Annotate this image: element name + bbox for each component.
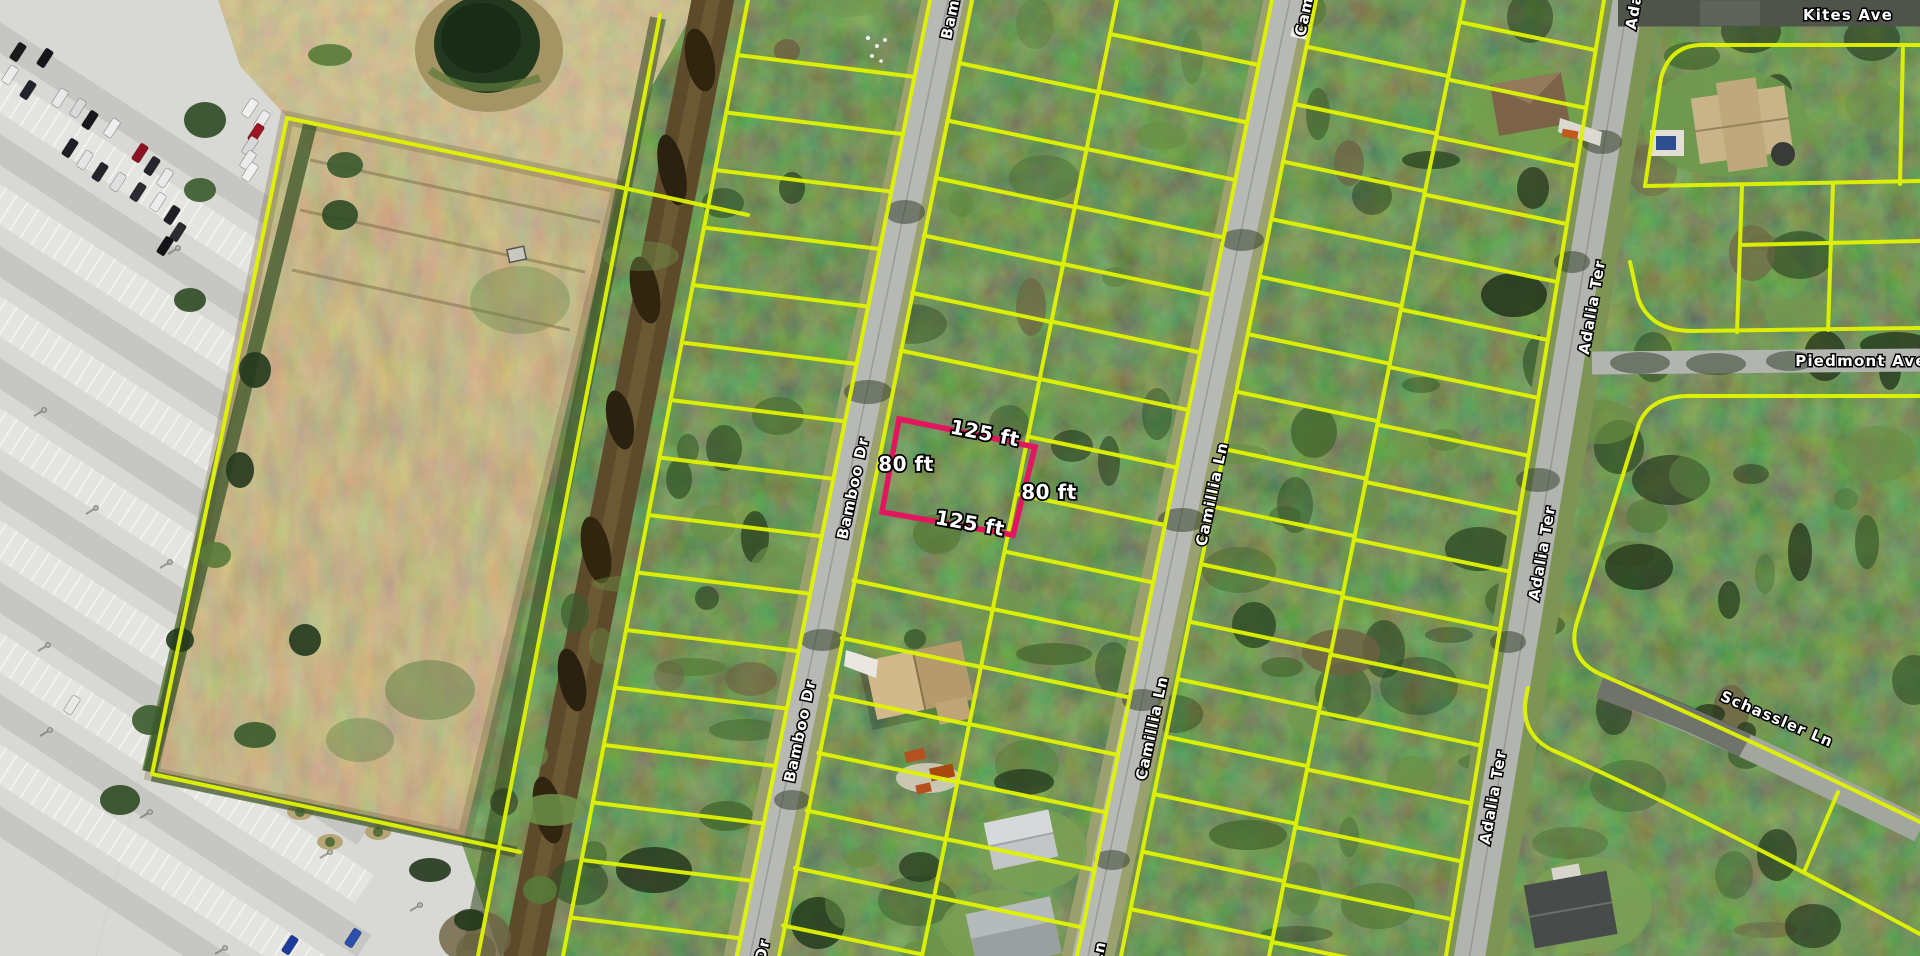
tree-canopy — [1669, 450, 1735, 500]
shrub — [325, 837, 335, 847]
tree-canopy — [1782, 668, 1810, 684]
round-pool — [1771, 142, 1795, 166]
tree-canopy — [1425, 627, 1473, 643]
tree-canopy — [1757, 829, 1797, 881]
tree-canopy — [1532, 827, 1608, 859]
street-label-piedmont-ave: Piedmont Ave — [1795, 352, 1920, 370]
tree-canopy — [100, 785, 140, 815]
tree-canopy — [327, 152, 363, 178]
light-pole — [418, 903, 423, 908]
tree-canopy — [234, 722, 276, 748]
light-pole — [94, 506, 99, 511]
tree-canopy — [184, 102, 226, 138]
tree-canopy — [184, 178, 216, 202]
tree-canopy — [1209, 820, 1287, 850]
tree-canopy — [199, 542, 231, 568]
tree-canopy — [239, 352, 271, 388]
tree-canopy — [1742, 929, 1764, 951]
tree-canopy — [1402, 377, 1440, 393]
tree-canopy — [592, 576, 658, 592]
tree-canopy — [1785, 904, 1841, 948]
light-pole — [223, 946, 228, 951]
tree-canopy — [845, 850, 877, 868]
tree-canopy — [322, 200, 358, 230]
tree-canopy — [1788, 523, 1812, 581]
dimension-label-left: 80 ft — [878, 452, 934, 476]
tree-canopy — [1098, 436, 1120, 486]
light-pole — [46, 643, 51, 648]
dimension-label-right: 80 ft — [1021, 480, 1077, 504]
tree-canopy — [1841, 426, 1917, 482]
light-pole — [168, 560, 173, 565]
tree-canopy — [666, 459, 692, 499]
light-pole — [48, 728, 53, 733]
tree-canopy — [1767, 231, 1833, 279]
tree-canopy — [1729, 225, 1775, 281]
tree-canopy — [1855, 515, 1879, 569]
light-pole — [328, 850, 333, 855]
tree-canopy — [1202, 547, 1276, 593]
tree-canopy — [825, 877, 867, 929]
tree-canopy — [695, 586, 719, 610]
tree-canopy — [1232, 602, 1276, 648]
tree-canopy — [749, 545, 805, 603]
tree-canopy — [1834, 488, 1858, 510]
tree-canopy — [308, 44, 352, 66]
tree-canopy — [454, 909, 486, 931]
tree-canopy — [1016, 278, 1046, 336]
street-label-kites-ave: Kites Ave — [1803, 6, 1893, 24]
tree-canopy — [654, 661, 684, 691]
light-pole — [176, 246, 181, 251]
tree-canopy — [561, 593, 589, 633]
tree-canopy — [1016, 0, 1054, 49]
tree-canopy — [1718, 581, 1740, 619]
tree-canopy — [1181, 30, 1203, 84]
tree-canopy — [226, 452, 254, 488]
tree-canopy — [899, 852, 941, 882]
tree-canopy — [289, 624, 321, 656]
tree-canopy — [1733, 464, 1769, 484]
tree-canopy — [1517, 167, 1549, 209]
tree-canopy — [523, 876, 557, 904]
tree-canopy — [1261, 657, 1303, 677]
map-viewport[interactable]: 125 ft 80 ft 80 ft 125 ft Bamboo Dr Bamb… — [0, 0, 1920, 956]
tree-canopy — [1016, 643, 1092, 665]
tree-canopy — [1291, 406, 1337, 458]
tree-canopy — [1306, 88, 1330, 140]
tree-canopy — [174, 288, 206, 312]
tree-canopy — [1302, 629, 1380, 675]
tree-canopy — [1715, 851, 1753, 899]
tree-canopy — [409, 858, 451, 882]
tree-canopy — [725, 662, 777, 696]
tree-canopy — [1605, 544, 1673, 590]
tree-canopy — [519, 794, 585, 826]
tree-canopy — [1393, 417, 1433, 463]
tree-canopy — [589, 628, 613, 664]
tree-canopy — [1135, 122, 1187, 150]
tree-canopy — [1845, 82, 1903, 128]
field-shed — [507, 246, 526, 262]
tree-canopy — [524, 743, 548, 767]
tree-canopy — [904, 629, 926, 649]
tree-canopy — [1142, 388, 1172, 440]
light-pole — [42, 408, 47, 413]
aerial-map[interactable]: 125 ft 80 ft 80 ft 125 ft Bamboo Dr Bamb… — [0, 0, 1920, 956]
light-pole — [148, 810, 153, 815]
pool — [1656, 136, 1676, 150]
tree-canopy — [1755, 554, 1775, 594]
